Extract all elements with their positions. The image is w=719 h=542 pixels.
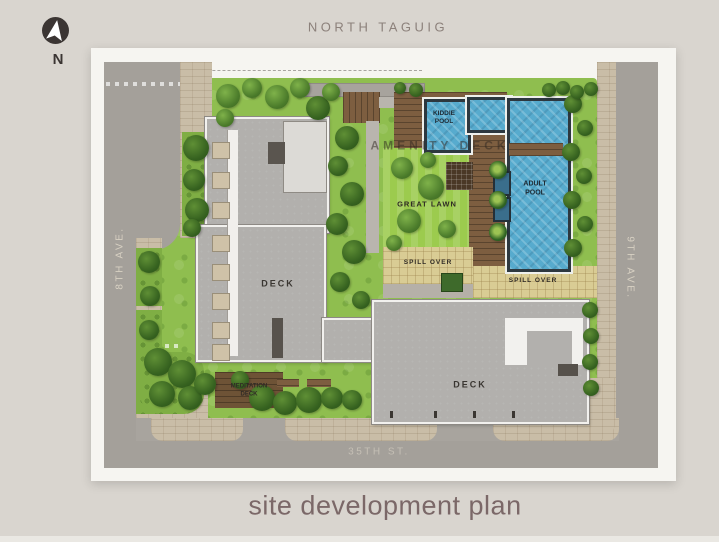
kiddie-pool-second-pane [467,97,511,133]
street-label-south: 35TH ST. [348,447,410,458]
tree [139,320,159,340]
tree [321,387,343,409]
door-tick [390,411,393,418]
tree [183,169,205,191]
courtyard-inner [527,331,572,365]
tree [386,235,402,251]
palm-tree [489,161,507,179]
tree [352,291,370,309]
tree [140,286,160,306]
door-tick [473,411,476,418]
label-amenity-deck: AMENITY DECK [370,139,509,154]
tree [290,78,310,98]
tree [583,380,599,396]
road-east [616,62,658,468]
tree [562,143,580,161]
balcony [212,322,230,339]
tree [330,272,350,292]
label-deck-east: DECK [453,379,487,390]
tree [168,360,196,388]
label-adult-pool: ADULT POOL [515,180,555,198]
tree [391,157,413,179]
tree [582,354,598,370]
balcony [212,202,230,219]
tree [342,390,362,410]
tree [183,219,201,237]
tree [296,387,322,413]
tree [584,82,598,96]
tree [418,174,444,200]
tree [577,120,593,136]
sidewalk-east [597,62,616,420]
tree [194,373,216,395]
tree [556,81,570,95]
sidewalk-bump-1 [151,418,243,441]
tree [340,182,364,206]
pool-bridge [509,143,563,156]
tree [583,328,599,344]
garden-bench [307,379,331,387]
tree [409,83,423,97]
tree [564,239,582,257]
balcony [212,172,230,189]
building-entrance-core [272,318,283,358]
north-arrow-icon [40,15,71,46]
compass-north-letter: N [46,51,70,68]
road-west-layby [136,62,180,250]
tree [577,216,593,232]
door-tick [434,411,437,418]
tree [216,109,234,127]
tree [149,381,175,407]
tree [335,126,359,150]
label-spill-over-upper: SPILL OVER [404,259,453,267]
crosswalk-north [106,82,180,86]
tree [183,135,209,161]
label-kiddie-pool: KIDDIE POOL [425,110,463,126]
tree [216,84,240,108]
pergola [446,162,473,190]
label-great-lawn: GREAT LAWN [397,199,457,208]
street-label-west: 8TH AVE. [115,226,126,289]
tree [273,391,297,415]
garden-bench [277,379,299,387]
tree [342,240,366,264]
tree [542,83,556,97]
building-roof-light [283,121,327,193]
tree [420,152,436,168]
label-spill-over-lower: SPILL OVER [509,277,558,285]
balcony [212,142,230,159]
tree [570,85,584,99]
tree [582,302,598,318]
balcony [212,235,230,252]
tree [397,209,421,233]
tree [394,82,406,94]
palm-tree [489,223,507,241]
tree [322,83,340,101]
wood-steps-platform [343,92,380,123]
balcony [212,264,230,281]
compass-icon [42,17,69,44]
tree [576,168,592,184]
label-meditation-deck: MEDITATION DECK [223,384,275,399]
tree [265,85,289,109]
tree [563,191,581,209]
street-label-north: NORTH TAGUIG [308,20,448,35]
tree [138,251,160,273]
bottom-strip [0,536,719,542]
tree [242,78,262,98]
stairs [558,364,578,376]
tree [328,156,348,176]
page-title: site development plan [248,491,521,522]
balcony [212,293,230,310]
tree [326,213,348,235]
street-label-east: 9TH AVE. [625,236,636,299]
door-tick [512,411,515,418]
palm-tree [489,191,507,209]
site-plan-page: N NORTH TAGUIG [0,0,719,542]
tree [438,220,456,238]
balcony [212,344,230,361]
label-deck-west: DECK [261,278,295,289]
building-roof-dark-unit [268,142,285,164]
planter-box [441,273,463,292]
